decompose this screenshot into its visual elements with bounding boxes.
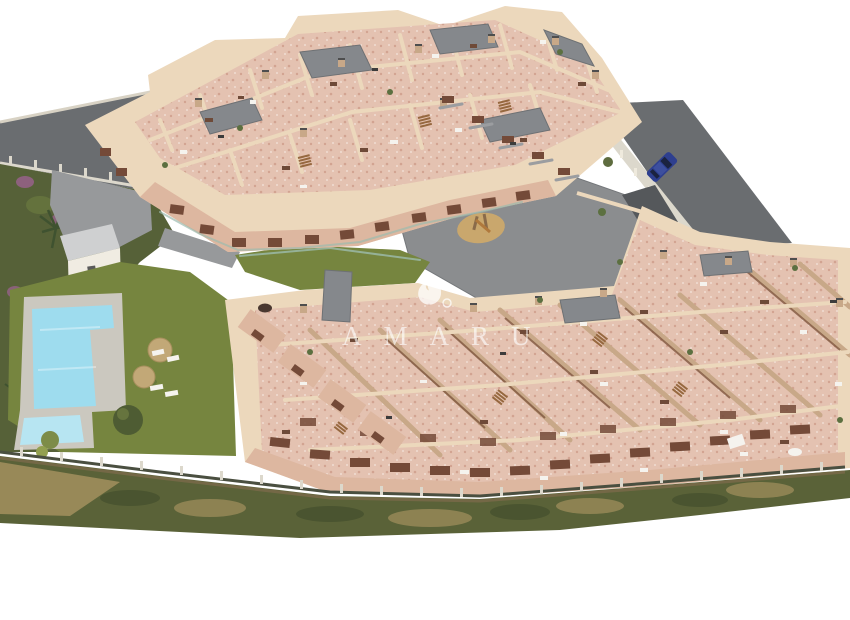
aerial-render-image: AMARU bbox=[0, 0, 850, 620]
pool-garden bbox=[8, 262, 236, 458]
watermark-brand-text: AMARU bbox=[342, 321, 553, 351]
straw-umbrella bbox=[133, 366, 155, 388]
flower-bush bbox=[16, 176, 34, 188]
roadside-bush bbox=[603, 157, 613, 167]
render-scene: AMARU bbox=[0, 0, 850, 620]
garden-tree bbox=[113, 405, 143, 435]
courtyard-planter bbox=[598, 208, 606, 216]
dining-table bbox=[258, 304, 272, 313]
